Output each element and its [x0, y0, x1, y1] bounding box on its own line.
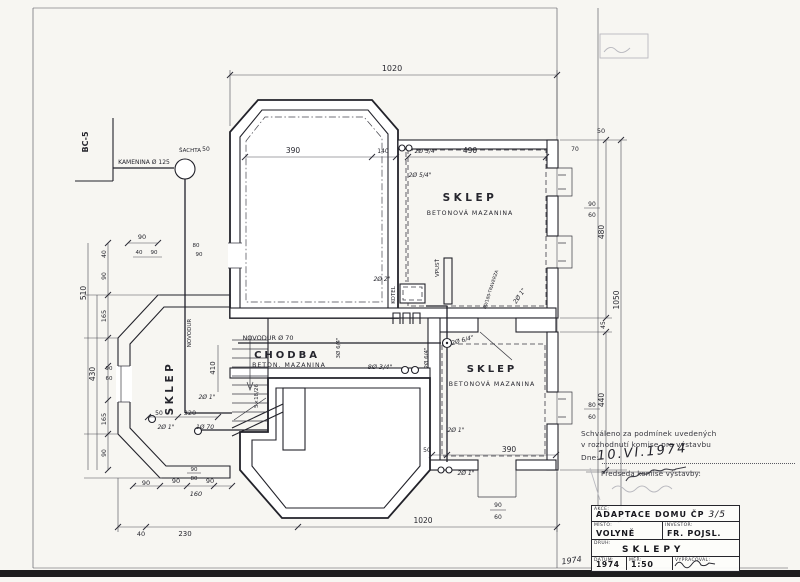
dimension-label: 50 [423, 447, 431, 454]
scanned-floor-plan: BC-5 KAMENINA Ø 125 ŠACHTA [0, 0, 800, 582]
dimension-label: 45 [600, 321, 607, 329]
top-left-room-outline [230, 100, 398, 318]
dimension-label: 410 [209, 361, 217, 374]
shaft-label: ŠACHTA [179, 147, 201, 154]
dimension-label: 230 [178, 530, 191, 538]
dimension-label: 40 [136, 250, 143, 256]
dimension-label: 90 [494, 502, 502, 509]
dimension-label: 60 [588, 414, 596, 421]
pipe-label: 1Ø 70 [196, 424, 214, 431]
dimension-label: 90 [206, 477, 214, 485]
pipe-label: 2Ø 5/4" [409, 172, 432, 179]
title-block-place-row: MÍSTO: VOLYNĚ INVESTOR: FR. POJSL. [592, 522, 739, 540]
pipe-label: 3Ø 6/4" [335, 338, 342, 359]
dimension-label: 390 [286, 146, 301, 155]
datum-value: 1974 [596, 560, 620, 569]
dimension-label: 90 [138, 233, 146, 241]
dimension-label: 40 [101, 250, 108, 258]
dimension-label: 165 [100, 310, 108, 322]
druh-value: SKLEPY [622, 545, 684, 555]
room-name: SKLEP [164, 361, 176, 416]
pipe-label: 2Ø 6/4" [423, 348, 430, 369]
dimension-label: 390 [502, 445, 517, 454]
author-signature [673, 557, 717, 569]
misto-cell: MÍSTO: VOLYNĚ [592, 522, 663, 539]
dimension-label: 1020 [413, 516, 432, 525]
project-title-text: ADAPTACE DOMU ČP [596, 510, 704, 519]
dimension-label: 80 [191, 476, 198, 482]
dimension-label: 160 [190, 490, 202, 498]
manhole-shaft [175, 159, 195, 179]
druh-label: DRUH: [594, 541, 611, 546]
corner-ref-label: BC-5 [81, 131, 90, 152]
pipe-label: 2Ø 1" [447, 427, 464, 434]
dimension-label: 440 [597, 393, 606, 408]
investor-label: INVESTOR: [665, 523, 693, 528]
dimension-label: 60 [588, 212, 596, 219]
misto-value: VOLYNĚ [596, 529, 635, 538]
pipe-label: NOVODUR [187, 319, 193, 348]
pipe-label: 2Ø 5/4" [415, 148, 438, 155]
mer-cell: MĚŘ: 1:50 [627, 557, 673, 570]
vypracoval-cell: VYPRACOVAL: [673, 557, 739, 570]
dimension-label: 90 [196, 252, 203, 258]
dimension-label: 50 [202, 146, 210, 153]
dimension-label: 90 [172, 477, 180, 485]
mer-value: 1:50 [631, 560, 654, 569]
pipe-label: 2Ø 2" [373, 276, 390, 283]
room-floor: BETON. MAZANINA [252, 362, 326, 369]
boiler-label: KOTEL [391, 285, 397, 303]
sewer-pipe-label: KAMENINA Ø 125 [118, 159, 170, 166]
stair-note: 5×18/26 [254, 384, 260, 408]
dimension-label: 90 [142, 479, 150, 487]
dimension-label: 490 [463, 146, 478, 155]
approval-stamp: Schváleno za podmínek uvedených v rozhod… [581, 429, 795, 479]
dimension-label: 50 [597, 127, 605, 135]
pipe-label: 2Ø 1" [457, 470, 474, 477]
room-floor: BETONOVÁ MAZANINA [449, 379, 536, 388]
pipe-label: 2Ø 1" [198, 394, 215, 401]
room-name: CHODBA [254, 350, 320, 361]
investor-cell: INVESTOR: FR. POJSL. [663, 522, 739, 539]
pipe-label: 2Ø 1" [157, 424, 174, 431]
plan-drawing: BC-5 KAMENINA Ø 125 ŠACHTA [0, 0, 800, 582]
dimension-label: 165 [100, 413, 108, 425]
dimension-label: 430 [88, 367, 97, 382]
dimension-label: 510 [79, 286, 88, 301]
dimension-label: 40 [137, 530, 145, 538]
dimension-label: 140 [377, 148, 389, 155]
dimension-label: 480 [597, 225, 606, 240]
dimension-label: 70 [571, 146, 579, 153]
room-floor: BETONOVÁ MAZANINA [427, 208, 514, 217]
room-name: SKLEP [467, 364, 517, 375]
dimension-label: 80 [193, 243, 200, 249]
dimension-label: 90 [101, 449, 108, 457]
dimension-label: 50 [155, 410, 163, 417]
dimension-label: 60 [106, 376, 113, 382]
title-block: AKCE: ADAPTACE DOMU ČP3/5 MÍSTO: VOLYNĚ … [591, 505, 740, 572]
drain-label: VPUSŤ [433, 258, 441, 277]
title-block-type-row: DRUH: SKLEPY [592, 540, 739, 557]
investor-value: FR. POJSL. [667, 529, 721, 538]
dimension-label: 60 [494, 514, 502, 521]
dimension-label: 90 [106, 366, 113, 372]
stamp-chairman-label: Předseda komise výstavby: [601, 469, 795, 480]
dimension-label: 90 [191, 467, 198, 473]
dimension-label: 320 [184, 409, 196, 417]
project-number: 3/5 [708, 510, 725, 520]
room-name: SKLEP [443, 192, 498, 204]
dimension-label: 80 [588, 402, 596, 409]
dimension-label: 90 [588, 201, 596, 208]
dimension-label: 90 [151, 250, 158, 256]
datum-cell: DATUM: 1974 [592, 557, 627, 570]
dimension-label: 1020 [382, 64, 402, 73]
dimension-label: 1050 [612, 290, 621, 309]
title-block-meta-row: DATUM: 1974 MĚŘ: 1:50 VYPRACOVAL: [592, 557, 739, 570]
pipe-label: NOVODUR Ø 70 [242, 334, 293, 342]
project-title: ADAPTACE DOMU ČP3/5 [596, 510, 726, 520]
title-block-project-row: AKCE: ADAPTACE DOMU ČP3/5 [592, 506, 739, 522]
dimension-label: 90 [101, 272, 108, 280]
stamp-line1: Schváleno za podmínek uvedených [581, 429, 795, 440]
misto-label: MÍSTO: [594, 523, 612, 528]
pipe-label: 8Ø 3/4" [368, 363, 393, 371]
